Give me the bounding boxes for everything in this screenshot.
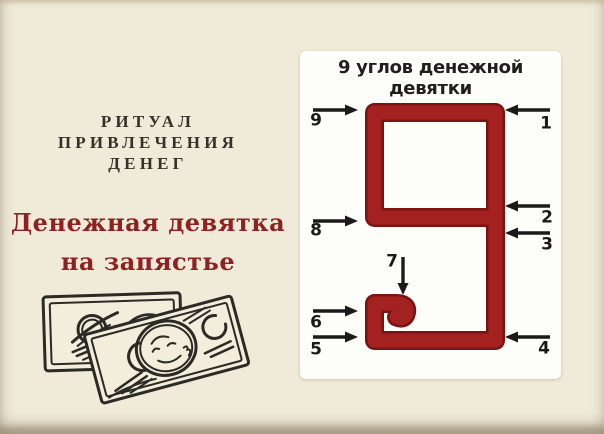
corner-label-4: 4 xyxy=(538,341,550,358)
photo-bottom-shadow xyxy=(0,423,604,434)
money-nine-diagram xyxy=(300,51,561,379)
ritual-title-line: РИТУАЛ xyxy=(18,111,278,132)
ritual-title: РИТУАЛ ПРИВЛЕЧЕНИЯ ДЕНЕГ xyxy=(18,111,278,174)
corner-label-5: 5 xyxy=(310,342,322,359)
corner-label-8: 8 xyxy=(310,223,322,240)
ritual-title-line: ПРИВЛЕЧЕНИЯ xyxy=(18,132,278,153)
diagram-card: 9 углов денежной девятки xyxy=(300,51,561,379)
corner-label-2: 2 xyxy=(541,210,553,227)
poster-canvas: РИТУАЛ ПРИВЛЕЧЕНИЯ ДЕНЕГ Денежная девятк… xyxy=(0,0,604,434)
corner-label-3: 3 xyxy=(541,237,553,254)
money-nine-heading: Денежная девятка на запястье xyxy=(4,203,292,281)
banknotes-sketch-icon xyxy=(20,284,288,420)
heading-line: на запястье xyxy=(4,242,292,281)
corner-label-7: 7 xyxy=(386,254,398,271)
ritual-title-line: ДЕНЕГ xyxy=(18,153,278,174)
corner-label-1: 1 xyxy=(540,116,552,133)
corner-label-6: 6 xyxy=(310,315,322,332)
corner-arrow-7 xyxy=(398,257,409,295)
money-nine-figure xyxy=(375,113,496,341)
left-panel: РИТУАЛ ПРИВЛЕЧЕНИЯ ДЕНЕГ Денежная девятк… xyxy=(0,0,300,434)
heading-line: Денежная девятка xyxy=(4,203,292,242)
corner-label-9: 9 xyxy=(310,113,322,130)
